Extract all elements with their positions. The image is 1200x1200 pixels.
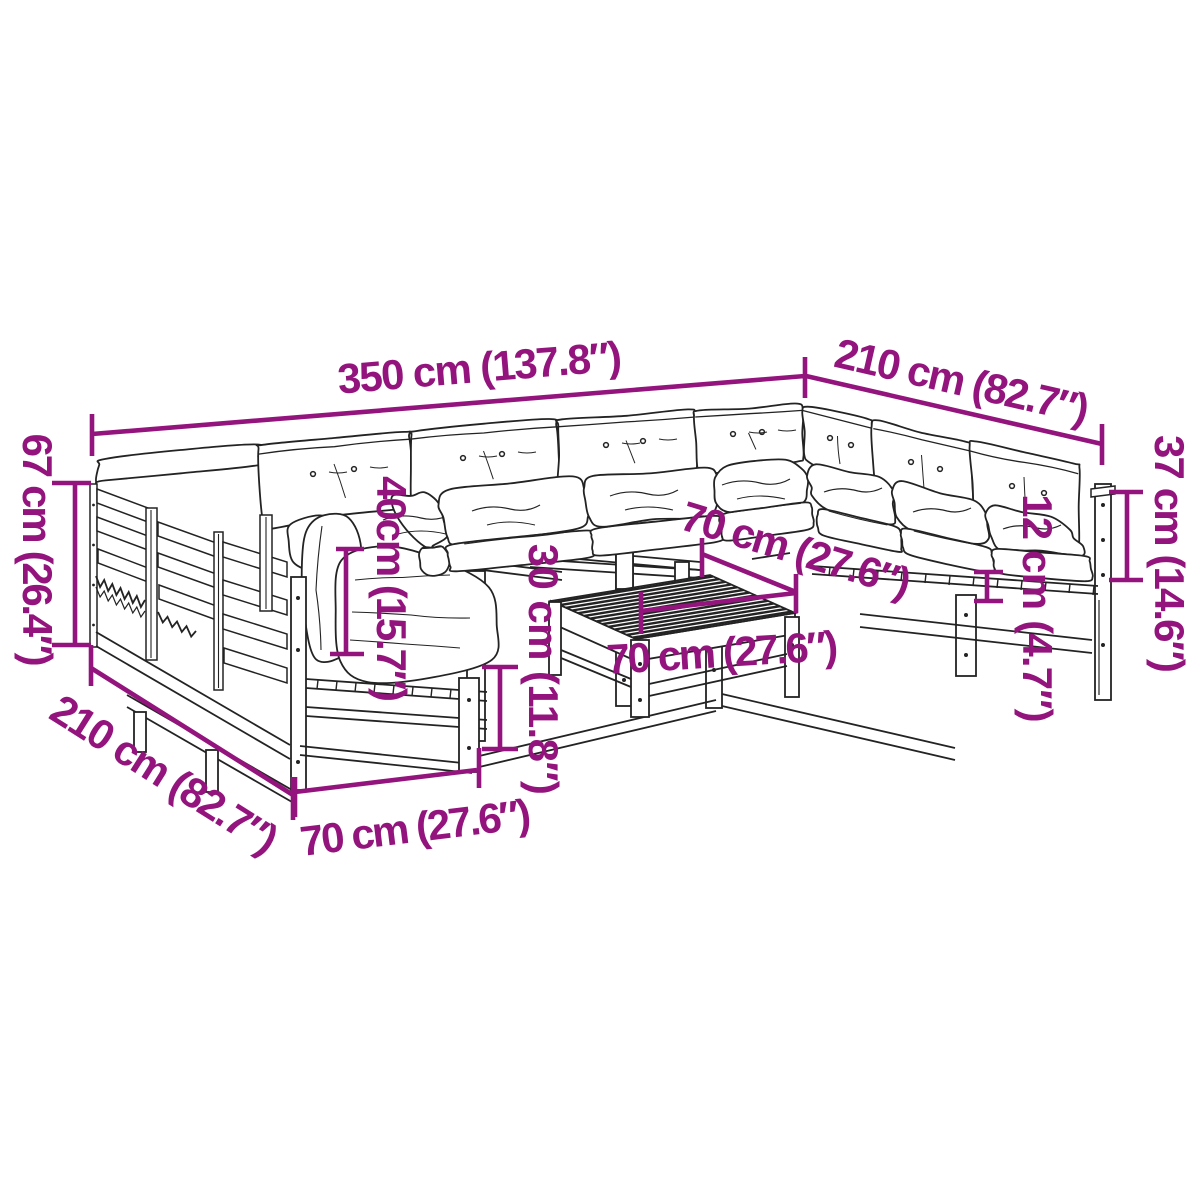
- svg-text:67 cm (26.4″): 67 cm (26.4″): [14, 434, 61, 665]
- svg-text:37 cm (14.6″): 37 cm (14.6″): [1146, 435, 1193, 671]
- svg-text:12 cm (4.7″): 12 cm (4.7″): [1014, 494, 1061, 722]
- svg-text:30 cm (11.8″): 30 cm (11.8″): [520, 544, 567, 794]
- svg-text:210 cm (82.7″): 210 cm (82.7″): [831, 329, 1092, 432]
- svg-text:40cm (15.7″): 40cm (15.7″): [368, 476, 415, 700]
- svg-text:70 cm (27.6″): 70 cm (27.6″): [298, 790, 532, 865]
- svg-text:350 cm (137.8″): 350 cm (137.8″): [336, 333, 622, 403]
